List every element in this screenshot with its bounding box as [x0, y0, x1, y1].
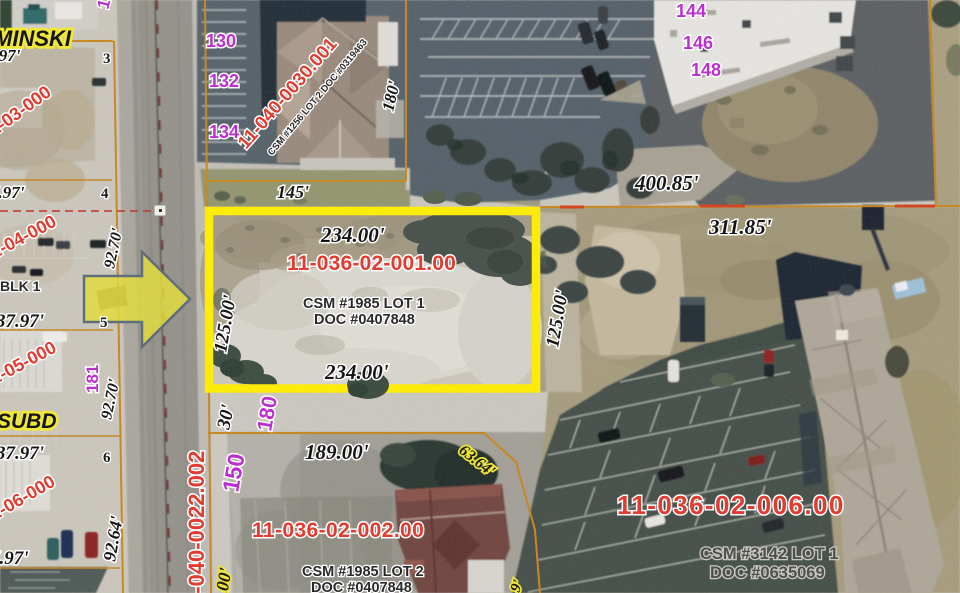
svg-text:5: 5	[100, 315, 108, 331]
svg-text:11-036-02-002.00: 11-036-02-002.00	[252, 519, 424, 542]
svg-text:400.85': 400.85'	[634, 171, 699, 195]
svg-text:CSM #3142 LOT 1: CSM #3142 LOT 1	[700, 545, 838, 563]
svg-text:234.00': 234.00'	[324, 360, 389, 384]
svg-text:CSM #1985 LOT 2: CSM #1985 LOT 2	[302, 564, 424, 580]
svg-text:37.97': 37.97'	[0, 443, 44, 464]
svg-text:4: 4	[101, 186, 109, 202]
svg-text:6: 6	[103, 450, 111, 466]
svg-text:DOC #0407848: DOC #0407848	[311, 580, 412, 593]
svg-text:311.85': 311.85'	[708, 215, 772, 239]
svg-text:134: 134	[209, 122, 239, 142]
svg-text:146: 146	[683, 33, 713, 53]
svg-text:CSM #1985 LOT 1: CSM #1985 LOT 1	[303, 296, 425, 312]
svg-text:7.97': 7.97'	[0, 548, 29, 569]
svg-text:130: 130	[206, 31, 236, 51]
svg-text:SUBD: SUBD	[0, 410, 57, 433]
svg-text:181: 181	[83, 365, 102, 393]
svg-text:DOC #0635069: DOC #0635069	[710, 564, 825, 582]
svg-text:148: 148	[691, 60, 721, 80]
svg-text:1-040-0022.002: 1-040-0022.002	[184, 451, 209, 593]
svg-text:144: 144	[676, 1, 706, 21]
svg-text:MINSKI: MINSKI	[0, 26, 72, 51]
svg-text:234.00': 234.00'	[320, 223, 385, 247]
svg-text:37.97': 37.97'	[0, 311, 44, 332]
svg-text:145': 145'	[277, 182, 309, 202]
svg-text:BLK 1: BLK 1	[0, 278, 41, 294]
svg-text:.00': .00'	[211, 566, 235, 593]
svg-text:3: 3	[103, 51, 111, 67]
svg-text:189.00': 189.00'	[305, 440, 369, 464]
svg-text:11-036-02-001.00: 11-036-02-001.00	[287, 252, 456, 275]
svg-text:DOC #0407848: DOC #0407848	[314, 312, 415, 328]
svg-text:11-036-02-006.00: 11-036-02-006.00	[617, 490, 845, 520]
svg-text:7.97': 7.97'	[0, 183, 25, 202]
svg-text:132: 132	[209, 71, 239, 91]
